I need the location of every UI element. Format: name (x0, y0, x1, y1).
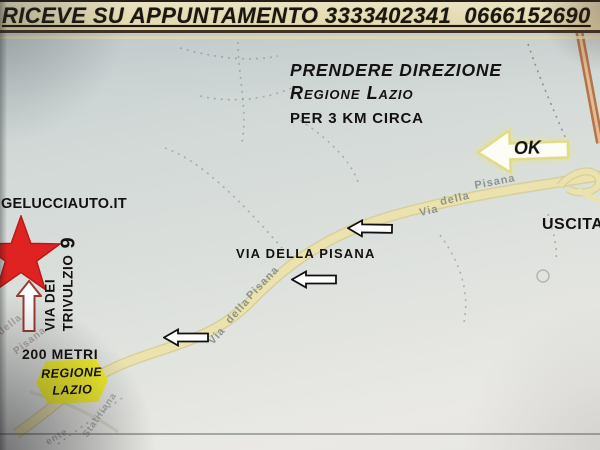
highway-road-center (579, 30, 600, 143)
dotted-contour (180, 48, 278, 59)
appointment-banner-text: RICEVE SU APPUNTAMENTO 3333402341 066615… (0, 3, 591, 29)
map-poi-mark (537, 270, 549, 282)
street-line2: TRIVULZIO (60, 255, 75, 332)
directions-block: PRENDERE DIREZIONE Regione Lazio PER 3 K… (290, 60, 502, 129)
region-sign-line1: REGIONE (41, 364, 103, 382)
route-arrow-icon (163, 328, 209, 347)
regione-lazio-sign: REGIONE LAZIO (35, 359, 108, 404)
dotted-contour (300, 120, 358, 182)
map-flyer: Via della Pisana Via della Pisana della … (0, 0, 600, 450)
road-annotation-label: VIA DELLA PISANA (236, 246, 376, 261)
exit-label: USCITA (542, 216, 600, 234)
road-via-della-pisana (16, 175, 600, 434)
website-label: GELUCCIAUTO.IT (1, 196, 127, 212)
route-arrow-icon (291, 270, 337, 289)
directions-line3: PER 3 KM CIRCA (290, 110, 502, 129)
road-via-della-pisana-casing (16, 175, 600, 434)
directions-line2: Regione Lazio (290, 82, 502, 105)
up-arrow-icon (16, 280, 42, 337)
ok-arrow-label: OK (514, 137, 542, 159)
dotted-contour (200, 88, 292, 100)
street-number: 9 (57, 237, 79, 249)
dotted-contour (440, 235, 466, 322)
appointment-banner: RICEVE SU APPUNTAMENTO 3333402341 066615… (0, 0, 600, 33)
dotted-contour (165, 148, 282, 248)
region-sign-line2: LAZIO (52, 381, 93, 399)
dotted-contour (238, 42, 244, 142)
route-arrow-icon (347, 219, 393, 239)
ok-direction-arrow: OK (475, 124, 571, 177)
screen-edge-line (0, 433, 600, 435)
street-line1: VIA DEI (42, 279, 57, 331)
banner-underline (0, 36, 600, 39)
directions-line1: PRENDERE DIREZIONE (290, 60, 502, 82)
destination-street-name: VIA DEI TRIVULZIO9 (42, 237, 80, 331)
